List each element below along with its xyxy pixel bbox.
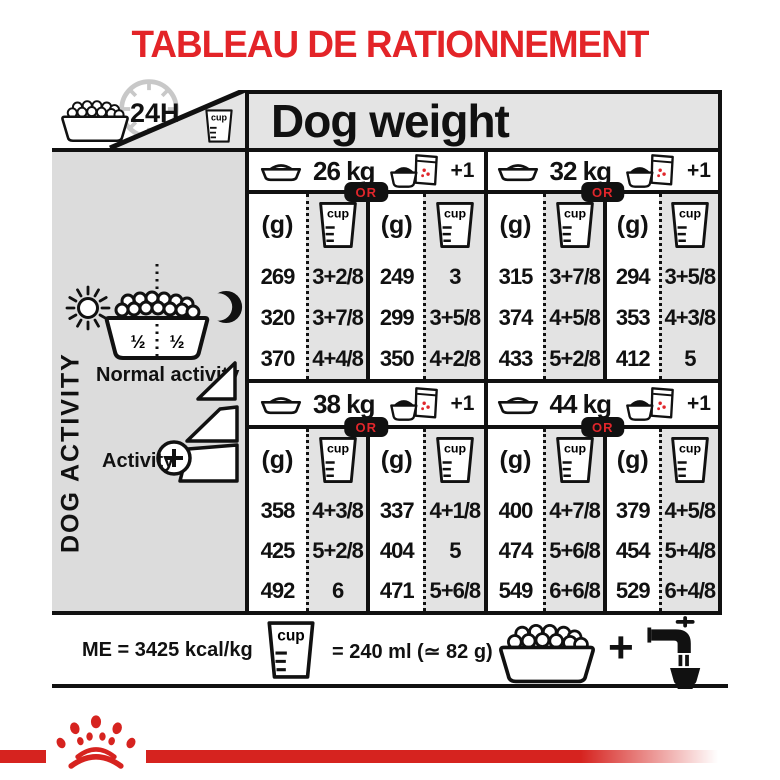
ration-cups-value: 3+5/8 [426, 297, 483, 338]
or-badge: OR [345, 417, 389, 437]
half-half-bowl-icon: ½ ½ [100, 262, 214, 364]
measuring-cup-icon [264, 620, 318, 680]
ration-grams-value: 454 [607, 531, 659, 571]
measuring-cup-icon [554, 201, 596, 249]
page-title: TABLEAU DE RATIONNEMENT [12, 24, 769, 67]
measuring-cup-icon [669, 201, 711, 249]
kibble-bowl-icon [490, 618, 604, 686]
grams-unit-label: (g) [617, 211, 649, 240]
plus-sign: + [608, 623, 634, 673]
royal-canin-crown-logo [50, 712, 142, 774]
measuring-cup-icon [554, 436, 596, 484]
pouch-and-bowl-icon [386, 386, 442, 422]
pouch-and-bowl-icon [622, 386, 678, 422]
ration-cups-value: 4+5/8 [662, 491, 718, 531]
ration-grams-value: 549 [488, 571, 544, 611]
cup-equivalence-label: = 240 ml (≃ 82 g) [332, 639, 493, 664]
plus-one-label: +1 [687, 159, 711, 183]
dog-weight-label: Dog weight [271, 94, 509, 148]
measuring-cup-icon [434, 201, 476, 249]
ration-cups-value: 6+6/8 [546, 571, 602, 611]
ration-grams-value: 337 [370, 491, 423, 531]
ration-data-44kg: (g) 400 474 549 4+7/8 5+6/8 6+6/8 (g) 37… [484, 429, 719, 611]
grams-unit-label: (g) [381, 446, 413, 475]
ration-cups-value: 3+7/8 [546, 256, 602, 297]
cups-column: 3+2/8 3+7/8 4+4/8 [306, 194, 366, 379]
food-bowl-icon [258, 161, 304, 182]
ration-grams-value: 412 [607, 338, 659, 379]
svg-text:½: ½ [169, 332, 184, 352]
plus-one-label: +1 [687, 392, 711, 416]
pouch-and-bowl-icon [622, 153, 678, 189]
brand-bar-left [0, 750, 46, 763]
rationing-table-page: TABLEAU DE RATIONNEMENT 24H Dog weight [0, 0, 780, 780]
grams-unit-label: (g) [261, 211, 293, 240]
food-bowl-icon [495, 394, 541, 415]
ration-grams-value: 471 [370, 571, 423, 611]
grams-unit-label: (g) [500, 446, 532, 475]
activity-label: Activity [102, 450, 174, 473]
cups-column: 4+7/8 5+6/8 6+6/8 [543, 429, 602, 611]
brand-bar-right [146, 750, 718, 763]
ration-cups-value: 3+5/8 [662, 256, 718, 297]
grams-column: (g) 294 353 412 [603, 194, 659, 379]
footer-legend: ME = 3425 kcal/kg = 240 ml (≃ 82 g) + [52, 615, 728, 688]
ration-cups-value: 4+7/8 [546, 491, 602, 531]
ration-grams-value: 474 [488, 531, 544, 571]
ration-grams-value: 299 [370, 297, 423, 338]
or-badge: OR [345, 182, 389, 202]
grams-column: (g) 249 299 350 [366, 194, 423, 379]
ration-grams-value: 529 [607, 571, 659, 611]
ration-grams-value: 400 [488, 491, 544, 531]
svg-text:½: ½ [130, 332, 145, 352]
ration-cups-value: 5+2/8 [309, 531, 366, 571]
cups-column: 3 3+5/8 4+2/8 [423, 194, 483, 379]
grams-unit-label: (g) [261, 446, 293, 475]
ration-cups-value: 4+1/8 [426, 491, 483, 531]
ration-grams-value: 492 [249, 571, 306, 611]
ration-cups-value: 3 [426, 256, 483, 297]
ration-cups-value: 6 [309, 571, 366, 611]
ration-grams-value: 320 [249, 297, 306, 338]
plus-one-label: +1 [451, 392, 475, 416]
measuring-cup-icon [317, 201, 359, 249]
ration-data-26kg: (g) 269 320 370 3+2/8 3+7/8 4+4/8 (g) 24… [249, 194, 484, 383]
ration-cups-value: 4+2/8 [426, 338, 483, 379]
weight-label: 44 kg [550, 389, 612, 420]
ration-cups-value: 5 [426, 531, 483, 571]
grams-unit-label: (g) [617, 446, 649, 475]
ration-grams-value: 353 [607, 297, 659, 338]
food-bowl-icon [258, 394, 304, 415]
daily-ration-bowl-icon [56, 96, 134, 144]
ration-grams-value: 404 [370, 531, 423, 571]
moon-icon [210, 288, 244, 326]
ration-grams-value: 294 [607, 256, 659, 297]
ration-cups-value: 4+3/8 [309, 491, 366, 531]
ration-grams-value: 269 [249, 256, 306, 297]
measuring-cup-icon [317, 436, 359, 484]
grams-column: (g) 379 454 529 [603, 429, 659, 611]
ration-grams-value: 249 [370, 256, 423, 297]
plus-one-label: +1 [451, 159, 475, 183]
weight-header-38kg: 38 kg +1 OR [249, 383, 484, 429]
or-badge: OR [581, 417, 625, 437]
ration-cups-value: 5+2/8 [546, 338, 602, 379]
ration-cups-value: 3+7/8 [309, 297, 366, 338]
ration-grams-value: 350 [370, 338, 423, 379]
grams-column: (g) 315 374 433 [488, 194, 544, 379]
activity-ramp-small-icon [194, 358, 238, 402]
measuring-cup-icon [669, 436, 711, 484]
ration-cups-value: 5 [662, 338, 718, 379]
ration-grams-value: 433 [488, 338, 544, 379]
ration-cups-value: 4+3/8 [662, 297, 718, 338]
ration-grams-value: 358 [249, 491, 306, 531]
table-corner: 24H [52, 90, 245, 148]
grams-unit-label: (g) [500, 211, 532, 240]
ration-table: 26 kg +1 OR 32 kg +1 OR (g) 269 320 370 … [245, 148, 722, 615]
ration-grams-value: 374 [488, 297, 544, 338]
measuring-cup-icon [434, 436, 476, 484]
weight-header-44kg: 44 kg +1 OR [484, 383, 719, 429]
ration-cups-value: 4+4/8 [309, 338, 366, 379]
cups-column: 3+5/8 4+3/8 5 [659, 194, 718, 379]
fresh-water-faucet-icon [638, 615, 704, 689]
ration-cups-value: 5+4/8 [662, 531, 718, 571]
ration-grams-value: 370 [249, 338, 306, 379]
weight-header-26kg: 26 kg +1 OR [249, 152, 484, 194]
dog-activity-axis-label: DOG ACTIVITY [56, 298, 86, 608]
cups-column: 4+5/8 5+4/8 6+4/8 [659, 429, 718, 611]
dog-activity-sidebar: ½ ½ DOG ACTIVITY Normal activity Activit… [52, 148, 245, 615]
grams-column: (g) 358 425 492 [249, 429, 306, 611]
ration-data-32kg: (g) 315 374 433 3+7/8 4+5/8 5+2/8 (g) 29… [484, 194, 719, 383]
ration-grams-value: 425 [249, 531, 306, 571]
food-bowl-icon [495, 161, 541, 182]
ration-cups-value: 5+6/8 [426, 571, 483, 611]
ration-cups-value: 3+2/8 [309, 256, 366, 297]
metabolizable-energy-label: ME = 3425 kcal/kg [82, 639, 253, 662]
cups-column: 3+7/8 4+5/8 5+2/8 [543, 194, 602, 379]
weight-header-32kg: 32 kg +1 OR [484, 152, 719, 194]
ration-cups-value: 4+5/8 [546, 297, 602, 338]
pouch-and-bowl-icon [386, 153, 442, 189]
ration-cups-value: 6+4/8 [662, 571, 718, 611]
dog-weight-header: Dog weight [245, 90, 722, 148]
weight-label: 38 kg [313, 389, 375, 420]
ration-grams-value: 379 [607, 491, 659, 531]
or-badge: OR [581, 182, 625, 202]
ration-grams-value: 315 [488, 256, 544, 297]
ration-data-38kg: (g) 358 425 492 4+3/8 5+2/8 6 (g) 337 40… [249, 429, 484, 611]
cups-column: 4+3/8 5+2/8 6 [306, 429, 366, 611]
ration-cups-value: 5+6/8 [546, 531, 602, 571]
grams-column: (g) 269 320 370 [249, 194, 306, 379]
measuring-cup-icon [206, 110, 231, 141]
cups-column: 4+1/8 5 5+6/8 [423, 429, 483, 611]
duration-label: 24H [130, 98, 180, 129]
grams-unit-label: (g) [381, 211, 413, 240]
grams-column: (g) 400 474 549 [488, 429, 544, 611]
grams-column: (g) 337 404 471 [366, 429, 423, 611]
